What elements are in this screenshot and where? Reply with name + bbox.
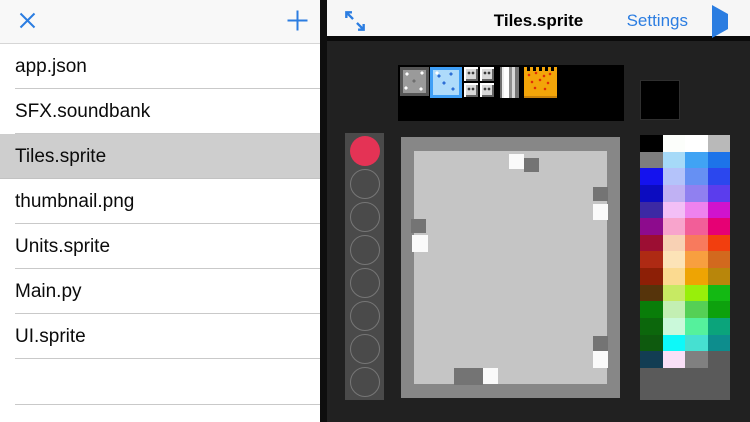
palette-color-swatch[interactable] [663,301,686,318]
palette-color-swatch[interactable] [708,335,731,352]
palette-color-swatch[interactable] [663,268,686,285]
palette-color-swatch[interactable] [640,218,663,235]
palette-color-swatch[interactable] [663,152,686,169]
close-button[interactable] [14,0,40,44]
palette-color-swatch[interactable] [708,218,731,235]
palette-color-swatch[interactable] [640,335,663,352]
sprite-tile-vent-blocks[interactable] [464,67,494,97]
palette-color-swatch[interactable] [640,235,663,252]
palette-color-swatch[interactable] [640,301,663,318]
canvas-pixel-dark [454,368,483,385]
palette-color-swatch[interactable] [640,351,663,368]
palette-color-swatch[interactable] [708,285,731,302]
palette-color-swatch[interactable] [685,301,708,318]
palette-color-swatch[interactable] [708,251,731,268]
palette-color-swatch[interactable] [685,251,708,268]
palette-color-swatch[interactable] [663,351,686,368]
list-item-label: Main.py [15,281,82,303]
pixel-editing-canvas[interactable] [401,137,620,398]
sprite-editor-header: Tiles.sprite Settings [327,0,750,41]
palette-color-swatch[interactable] [685,152,708,169]
palette-color-swatch[interactable] [708,168,731,185]
palette-color-swatch[interactable] [685,135,708,152]
palette-color-swatch[interactable] [640,202,663,219]
sprite-sheet-strip [398,65,624,121]
app-screen: app.jsonSFX.soundbankTiles.spritethumbna… [0,0,750,422]
tool-slot-empty[interactable] [350,169,380,199]
plus-icon [286,9,309,35]
sprite-tile-lava-block[interactable] [524,71,557,98]
list-item-label: Tiles.sprite [15,146,106,168]
list-item-label: Units.sprite [15,236,110,258]
expand-button[interactable] [341,8,369,36]
palette-color-swatch[interactable] [640,185,663,202]
expand-icon [342,22,368,37]
canvas-pixel-light [412,235,428,252]
palette-color-swatch[interactable] [663,318,686,335]
list-item[interactable]: UI.sprite [0,314,320,359]
palette-color-swatch[interactable] [663,285,686,302]
vent-block [480,83,494,97]
palette-color-swatch[interactable] [640,168,663,185]
canvas-pixel-dark [593,336,608,351]
add-file-button[interactable] [282,0,312,44]
palette-color-swatch[interactable] [685,235,708,252]
vent-block [464,83,478,97]
palette-color-swatch[interactable] [685,185,708,202]
palette-color-swatch[interactable] [685,351,708,368]
palette-color-swatch[interactable] [708,185,731,202]
list-item[interactable]: SFX.soundbank [0,89,320,134]
palette-color-swatch[interactable] [685,335,708,352]
vent-block [480,67,494,81]
tool-slot-empty[interactable] [350,334,380,364]
tool-slot-empty[interactable] [350,235,380,265]
palette-color-swatch[interactable] [708,268,731,285]
palette-color-swatch[interactable] [685,218,708,235]
palette-color-swatch[interactable] [663,235,686,252]
palette-color-swatch[interactable] [640,251,663,268]
palette-color-swatch[interactable] [663,251,686,268]
palette-color-swatch[interactable] [663,335,686,352]
palette-color-swatch[interactable] [708,235,731,252]
list-item[interactable]: Main.py [0,269,320,314]
panel-divider [320,0,327,422]
palette-color-swatch[interactable] [663,202,686,219]
list-item-label: SFX.soundbank [15,101,150,123]
palette-color-swatch[interactable] [708,301,731,318]
list-item[interactable]: Units.sprite [0,224,320,269]
list-item-label: UI.sprite [15,326,86,348]
list-item-label: thumbnail.png [15,191,134,213]
tool-slot-empty[interactable] [350,268,380,298]
sprite-tile-stone-block[interactable] [400,67,429,96]
palette-color-swatch[interactable] [663,168,686,185]
color-palette-grid [640,135,730,368]
settings-button[interactable]: Settings [627,0,688,41]
palette-color-swatch[interactable] [640,285,663,302]
tool-slot-empty[interactable] [350,202,380,232]
palette-color-swatch[interactable] [640,268,663,285]
sprite-tile-pillar-block[interactable] [500,67,519,98]
palette-color-swatch[interactable] [685,268,708,285]
palette-color-swatch[interactable] [685,318,708,335]
palette-color-swatch[interactable] [663,135,686,152]
tool-slot-empty[interactable] [350,301,380,331]
list-item[interactable]: Tiles.sprite [0,134,320,179]
list-item-label: app.json [15,56,87,78]
tool-slot-empty[interactable] [350,367,380,397]
canvas-tile-interior [414,151,607,384]
color-palette [640,135,730,400]
palette-color-swatch[interactable] [708,152,731,169]
file-browser-panel: app.jsonSFX.soundbankTiles.spritethumbna… [0,0,320,422]
palette-color-swatch[interactable] [640,152,663,169]
canvas-pixel-dark [411,219,426,233]
canvas-pixel-dark [593,187,608,201]
sprite-editor-panel: Tiles.sprite Settings [327,0,750,422]
palette-color-swatch[interactable] [685,285,708,302]
canvas-pixel-light [509,154,524,169]
tool-strip [345,133,384,400]
list-item[interactable]: app.json [0,44,320,89]
list-item[interactable]: thumbnail.png [0,179,320,224]
sprite-tile-ice-block-selected[interactable] [430,67,462,98]
file-browser-header [0,0,320,44]
palette-color-swatch[interactable] [685,202,708,219]
palette-color-swatch[interactable] [708,202,731,219]
palette-color-swatch[interactable] [640,135,663,152]
tool-slot-active[interactable] [350,136,380,166]
palette-color-swatch[interactable] [640,318,663,335]
canvas-pixel-light [593,351,608,368]
palette-color-swatch[interactable] [663,218,686,235]
palette-color-swatch[interactable] [708,135,731,152]
file-list: app.jsonSFX.soundbankTiles.spritethumbna… [0,44,320,359]
play-icon [712,5,728,38]
file-list-spacer [0,359,320,405]
canvas-pixel-dark [524,158,539,172]
run-button[interactable] [709,11,731,31]
vent-block [464,67,478,81]
current-color-swatch[interactable] [640,80,680,120]
canvas-pixel-light [593,204,608,220]
canvas-pixel-light [483,368,498,384]
palette-color-swatch[interactable] [663,185,686,202]
palette-color-swatch[interactable] [708,318,731,335]
palette-color-swatch[interactable] [685,168,708,185]
palette-empty-cell [708,351,731,368]
close-icon [18,11,37,33]
